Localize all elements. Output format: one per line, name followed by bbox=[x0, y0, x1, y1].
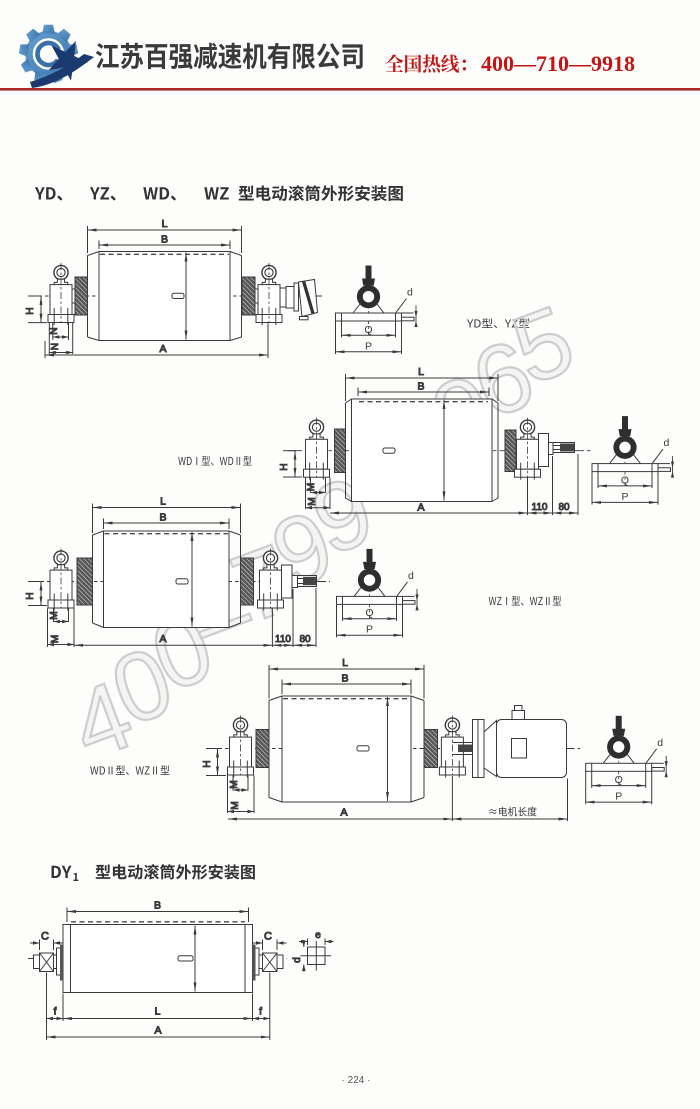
svg-text:110: 110 bbox=[275, 634, 291, 645]
svg-text:110: 110 bbox=[532, 502, 548, 513]
svg-text:B: B bbox=[154, 900, 161, 912]
svg-text:N: N bbox=[50, 343, 61, 350]
svg-text:L: L bbox=[155, 1006, 161, 1018]
svg-text:H: H bbox=[25, 307, 36, 314]
svg-text:M: M bbox=[50, 635, 61, 644]
svg-text:N: N bbox=[49, 327, 60, 334]
svg-text:A: A bbox=[159, 343, 166, 355]
svg-text:400—710—9918: 400—710—9918 bbox=[481, 51, 635, 76]
svg-text:f: f bbox=[54, 1007, 57, 1018]
svg-text:B: B bbox=[341, 673, 348, 685]
svg-text:f: f bbox=[259, 1007, 262, 1018]
svg-text:A: A bbox=[159, 633, 166, 645]
svg-text:M: M bbox=[306, 483, 317, 492]
svg-text:L: L bbox=[162, 218, 168, 230]
svg-text:A: A bbox=[154, 1025, 161, 1037]
svg-text:M: M bbox=[230, 801, 241, 810]
svg-text:L: L bbox=[342, 657, 348, 669]
svg-text:H: H bbox=[202, 760, 213, 767]
svg-text:L: L bbox=[418, 366, 424, 378]
svg-text:80: 80 bbox=[299, 634, 311, 645]
svg-text:H: H bbox=[279, 463, 290, 470]
svg-text:A: A bbox=[417, 502, 424, 514]
svg-text:A: A bbox=[340, 807, 347, 819]
svg-text:B: B bbox=[417, 381, 424, 393]
svg-text:L: L bbox=[160, 496, 166, 508]
svg-text:B: B bbox=[159, 512, 166, 524]
svg-text:d: d bbox=[292, 957, 303, 963]
svg-text:H: H bbox=[25, 592, 36, 599]
svg-text:· 224 ·: · 224 · bbox=[342, 1075, 371, 1086]
svg-text:C: C bbox=[264, 931, 272, 943]
svg-text:e: e bbox=[315, 930, 321, 941]
svg-text:B: B bbox=[161, 234, 168, 246]
svg-text:M: M bbox=[49, 611, 60, 620]
svg-text:80: 80 bbox=[558, 502, 570, 513]
svg-text:C: C bbox=[41, 931, 49, 943]
svg-text:M: M bbox=[229, 780, 240, 789]
svg-text:M: M bbox=[307, 497, 318, 506]
